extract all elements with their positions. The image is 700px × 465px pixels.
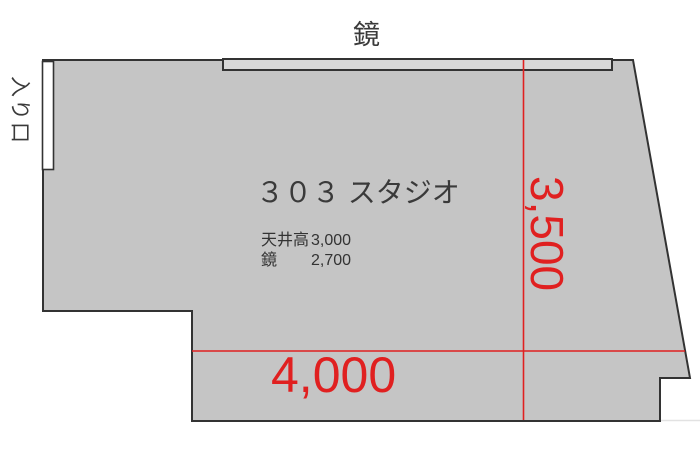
specs-block: 天井高 3,000 鏡 2,700	[261, 231, 351, 271]
mirror-wall	[223, 59, 612, 70]
dimension-vertical-value: 3,500	[524, 176, 570, 316]
spec-name-ceiling: 天井高	[261, 231, 311, 251]
entrance-door	[43, 62, 54, 170]
room-name-label: ３０３ スタジオ	[256, 171, 460, 211]
spec-row-mirror: 鏡 2,700	[261, 251, 351, 271]
spec-name-mirror: 鏡	[261, 251, 311, 271]
entrance-label: 入り口	[9, 76, 30, 145]
dimension-horizontal-value: 4,000	[271, 350, 396, 400]
spec-row-ceiling: 天井高 3,000	[261, 231, 351, 251]
spec-value-ceiling: 3,000	[311, 231, 351, 251]
spec-value-mirror: 2,700	[311, 251, 351, 271]
mirror-label: 鏡	[353, 13, 380, 52]
floorplan-canvas: 鏡 入り口 ３０３ スタジオ 天井高 3,000 鏡 2,700 3,500 4…	[0, 0, 700, 465]
